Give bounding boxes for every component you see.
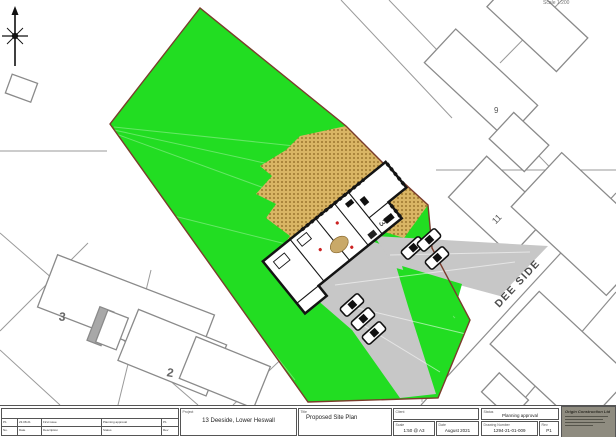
- status-value: Planning approval: [482, 413, 558, 418]
- drawing-number-value: 1294-21-01-009: [482, 428, 537, 433]
- company-name: Origin Construction Ltd: [565, 409, 612, 414]
- rev-cell: No.: [2, 427, 18, 435]
- scale-value: 1:50 @ A3: [394, 428, 434, 433]
- north-arrow-icon: [2, 6, 28, 66]
- project-label: Project: [183, 410, 194, 414]
- rev-cell: Status: [102, 427, 162, 435]
- rev-cell: P1: [2, 419, 18, 426]
- scale-box: Scale 1:50 @ A3: [393, 421, 435, 436]
- rev-cell: Date: [18, 427, 42, 435]
- drawing-title-box: Title Proposed Site Plan: [298, 408, 392, 436]
- drawing-sheet: 9 11 3 2: [0, 0, 616, 437]
- drawing-number-box: Drawing Number 1294-21-01-009: [481, 421, 538, 436]
- client-label: Client: [396, 410, 405, 414]
- drawing-number-label: Drawing Number: [484, 423, 510, 427]
- project-value: 13 Deeside, Lower Heswall: [181, 418, 296, 424]
- date-value: August 2021: [437, 428, 478, 433]
- project-box: Project 13 Deeside, Lower Heswall: [180, 408, 297, 436]
- date-label: Date: [439, 423, 446, 427]
- rev-value: P1: [540, 428, 558, 433]
- scale-note: Scale 1:200: [543, 0, 570, 6]
- plot-number-3: 3: [58, 309, 67, 324]
- revision-table: P1 23.08.21 First issue Planning approva…: [1, 408, 179, 436]
- rev-box: Rev P1: [539, 421, 559, 436]
- rev-cell: First issue: [42, 419, 102, 426]
- rev-cell: Planning approval: [102, 419, 162, 426]
- rev-cell: 23.08.21: [18, 419, 42, 426]
- rev-cell: Rev: [162, 427, 178, 435]
- title-label: Title: [301, 410, 307, 414]
- client-box: Client: [393, 408, 479, 420]
- drawing-title-value: Proposed Site Plan: [299, 415, 391, 421]
- rev-label: Rev: [542, 423, 548, 427]
- revision-row: No. Date Description Status Rev: [2, 427, 178, 435]
- date-box: Date August 2021: [436, 421, 479, 436]
- company-stamp: Origin Construction Ltd: [561, 406, 616, 437]
- title-block: P1 23.08.21 First issue Planning approva…: [0, 405, 616, 437]
- plot-number-9: 9: [494, 106, 499, 115]
- site-plan-drawing: 9 11 3 2: [0, 0, 616, 405]
- status-box: Status Planning approval: [481, 408, 559, 420]
- rev-cell: P1: [162, 419, 178, 426]
- rev-cell: Description: [42, 427, 102, 435]
- revision-row: P1 23.08.21 First issue Planning approva…: [2, 419, 178, 427]
- scale-label: Scale: [396, 423, 405, 427]
